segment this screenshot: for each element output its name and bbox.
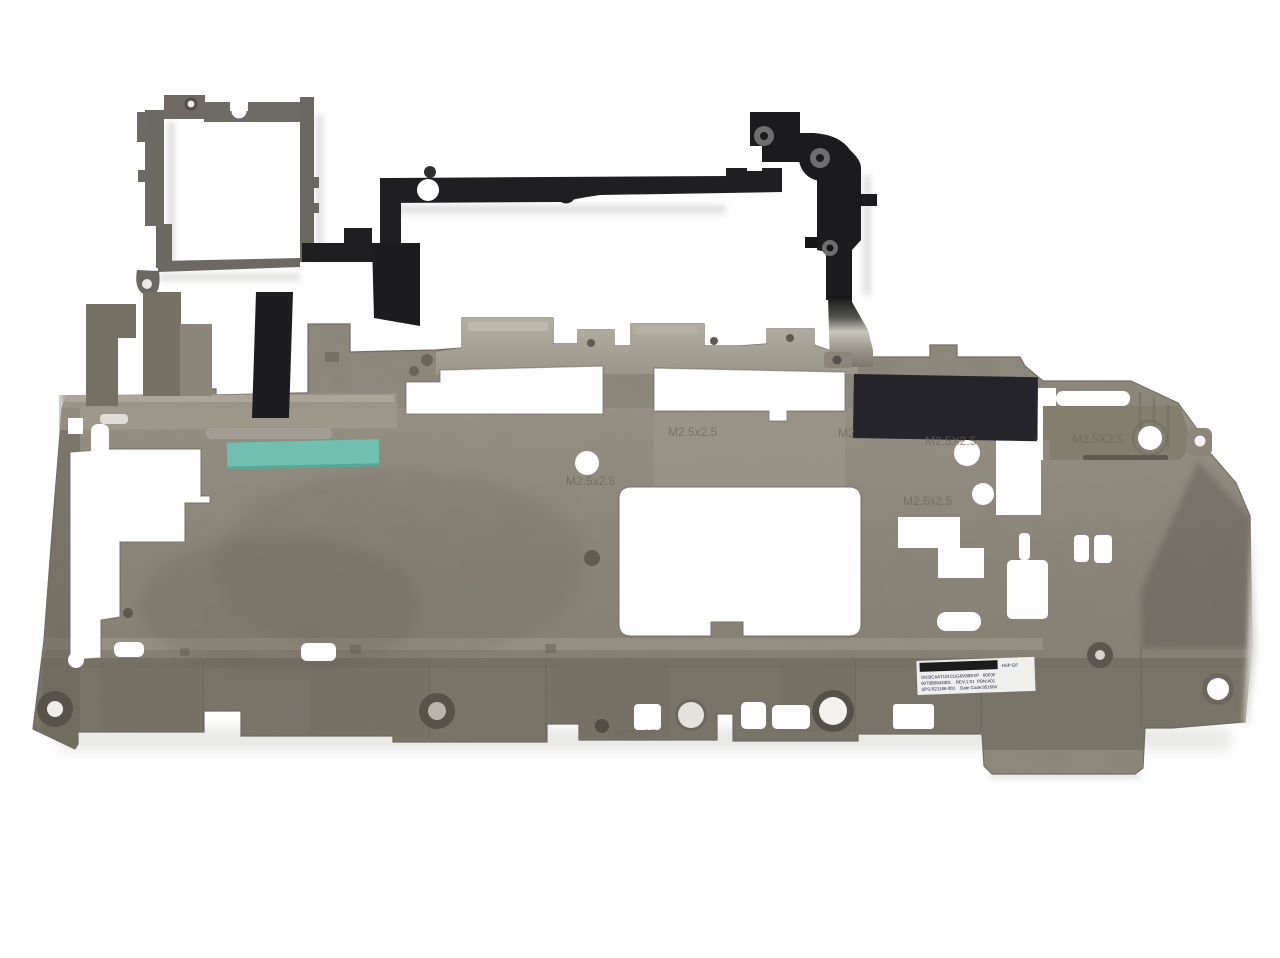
svg-text:M2.5x2.5: M2.5x2.5 [566, 474, 616, 488]
svg-text:HSP:GF: HSP:GF [1002, 662, 1019, 668]
svg-text:M2: M2 [838, 426, 855, 440]
svg-text:M25x25: M25x25 [614, 727, 657, 741]
svg-text:M2.5x2.5: M2.5x2.5 [668, 425, 718, 439]
svg-text:M2.5X2.5: M2.5X2.5 [925, 434, 977, 448]
svg-text:M2.5X2.5: M2.5X2.5 [1072, 432, 1124, 446]
svg-text:M2.5x2.5: M2.5x2.5 [903, 494, 953, 508]
